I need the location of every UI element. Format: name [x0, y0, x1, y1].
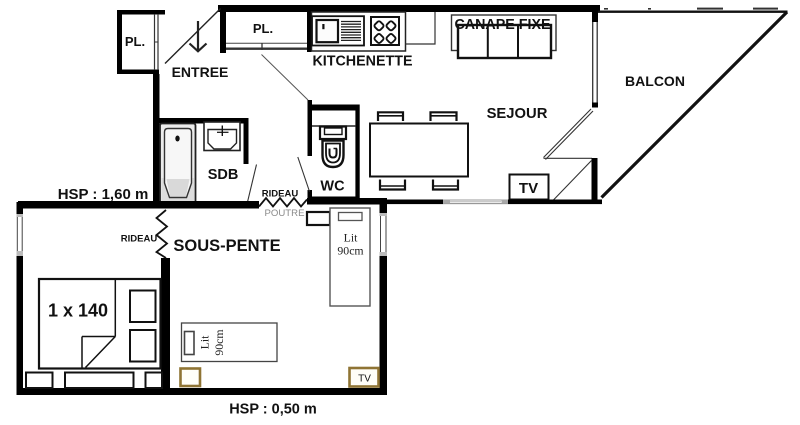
svg-text:Lit: Lit	[198, 335, 212, 349]
svg-text:SOUS-PENTE: SOUS-PENTE	[173, 237, 280, 255]
svg-text:1 x 140: 1 x 140	[48, 301, 108, 321]
svg-text:SEJOUR: SEJOUR	[487, 106, 548, 122]
svg-text:Lit: Lit	[344, 231, 358, 245]
svg-text:90cm: 90cm	[337, 244, 363, 258]
svg-text:HSP : 0,50 m: HSP : 0,50 m	[229, 402, 317, 418]
svg-text:WC: WC	[320, 179, 345, 195]
svg-text:PL.: PL.	[253, 21, 273, 36]
svg-text:RIDEAU: RIDEAU	[262, 189, 299, 200]
svg-text:KITCHENETTE: KITCHENETTE	[312, 54, 412, 70]
svg-text:CANAPE FIXE: CANAPE FIXE	[454, 17, 550, 33]
svg-text:HSP : 1,60 m: HSP : 1,60 m	[58, 186, 149, 203]
svg-text:TV: TV	[358, 374, 371, 385]
svg-text:BALCON: BALCON	[625, 73, 685, 89]
svg-text:PL.: PL.	[125, 34, 145, 49]
svg-text:RIDEAU: RIDEAU	[121, 234, 158, 245]
svg-text:90cm: 90cm	[212, 329, 226, 355]
svg-text:TV: TV	[519, 180, 538, 197]
svg-text:SDB: SDB	[208, 167, 239, 183]
svg-text:POUTRE: POUTRE	[265, 208, 305, 219]
svg-text:ENTREE: ENTREE	[172, 64, 229, 80]
